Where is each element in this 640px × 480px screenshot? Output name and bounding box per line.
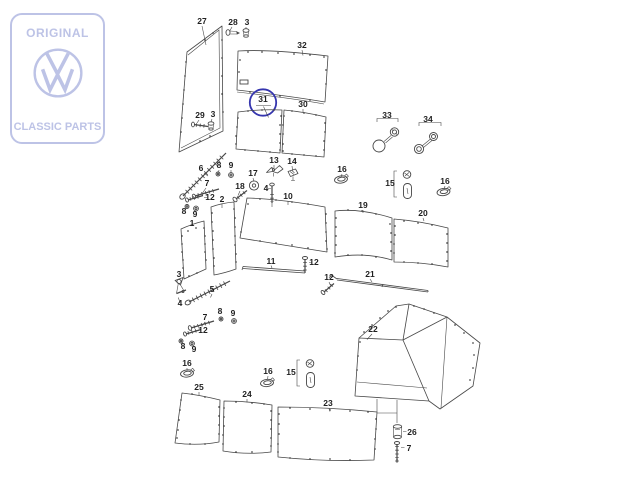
part-label-30[interactable]: 30 [298,99,308,109]
part-label-2[interactable]: 2 [220,194,225,204]
screw-12-diagonal [320,284,334,296]
panel-10 [240,198,327,252]
part-label-25[interactable]: 25 [194,382,204,392]
rod-11 [242,267,305,274]
part-label-15[interactable]: 15 [286,367,296,377]
part-label-12[interactable]: 12 [205,192,215,202]
part-label-12[interactable]: 12 [309,257,319,267]
clip-16b [436,186,451,196]
part-label-3[interactable]: 3 [211,109,216,119]
screw-7c [394,442,399,463]
screw-29 [192,122,209,127]
grommet-3-top [243,29,249,38]
part-label-13[interactable]: 13 [269,155,279,165]
clip-14 [288,169,298,181]
clip-16c [180,368,195,378]
panel-30 [282,110,326,157]
part-label-6[interactable]: 6 [199,163,204,173]
part-label-16[interactable]: 16 [337,164,347,174]
part-label-16[interactable]: 16 [182,358,192,368]
part-label-31[interactable]: 31 [258,94,268,104]
part-label-9[interactable]: 9 [229,160,234,170]
grommet-3-left [208,122,214,130]
part-label-4[interactable]: 4 [264,183,269,193]
part-label-32[interactable]: 32 [297,40,307,50]
knob-34 [414,123,441,154]
panel-24 [223,401,272,453]
bolt-4 [270,183,275,207]
part-label-24[interactable]: 24 [242,389,252,399]
part-label-21[interactable]: 21 [365,269,375,279]
part-label-7[interactable]: 7 [203,312,208,322]
nut-9c [232,319,237,324]
part-label-12[interactable]: 12 [324,272,334,282]
part-label-12[interactable]: 12 [198,325,208,335]
part-label-20[interactable]: 20 [418,208,428,218]
part-label-8[interactable]: 8 [217,160,222,170]
part-label-9[interactable]: 9 [192,344,197,354]
part-label-8[interactable]: 8 [181,341,186,351]
part-label-10[interactable]: 10 [283,191,293,201]
rod-21 [329,276,428,293]
part-label-28[interactable]: 28 [228,17,238,27]
part-label-16[interactable]: 16 [440,176,450,186]
part-label-23[interactable]: 23 [323,398,333,408]
panel-31 [236,110,282,153]
bracket-assembly-15a [394,171,412,199]
screw-12a [185,196,203,203]
washer-8a [216,172,220,176]
parts-diagram: 2728332313029333346891314161516177184121… [0,0,640,480]
screw-5 [184,281,230,306]
catalog-image: { "watermark": { "line1": "ORIGINAL", "l… [0,0,640,480]
part-label-27[interactable]: 27 [197,16,207,26]
part-label-29[interactable]: 29 [195,110,205,120]
part-label-8[interactable]: 8 [182,206,187,216]
part-label-3[interactable]: 3 [177,269,182,279]
part-label-1[interactable]: 1 [190,218,195,228]
panel-25 [175,393,220,444]
panel-2 [211,202,236,275]
fastener-28 [226,30,240,36]
part-label-4[interactable]: 4 [178,298,183,308]
part-label-22[interactable]: 22 [368,324,378,334]
part-label-15[interactable]: 15 [385,178,395,188]
part-label-18[interactable]: 18 [235,181,245,191]
panel-23 [278,407,377,461]
washer-8c [219,317,223,321]
clamp-13 [267,166,284,177]
knob-33 [373,119,399,153]
panel-20 [394,219,448,267]
part-label-16[interactable]: 16 [263,366,273,376]
part-label-8[interactable]: 8 [218,306,223,316]
grommet-17 [249,181,258,190]
wheel-arch-cover-22 [355,304,480,409]
part-label-19[interactable]: 19 [358,200,368,210]
part-label-3[interactable]: 3 [245,17,250,27]
part-label-17[interactable]: 17 [248,168,258,178]
nut-9a [229,173,234,178]
part-label-34[interactable]: 34 [423,114,433,124]
panel-27 [179,26,223,152]
cap-26 [393,425,401,439]
bracket-assembly-15b [297,360,315,388]
part-label-5[interactable]: 5 [210,284,215,294]
part-label-11[interactable]: 11 [267,256,276,266]
panel-19 [335,210,392,260]
part-labels: 2728332313029333346891314161516177184121… [177,16,450,453]
part-label-26[interactable]: 26 [407,427,417,437]
part-label-9[interactable]: 9 [231,308,236,318]
part-label-14[interactable]: 14 [287,156,297,166]
part-label-7[interactable]: 7 [205,178,210,188]
leader-lines [178,26,445,448]
part-label-7[interactable]: 7 [407,443,412,453]
panel-1 [181,221,206,279]
part-label-33[interactable]: 33 [382,110,392,120]
